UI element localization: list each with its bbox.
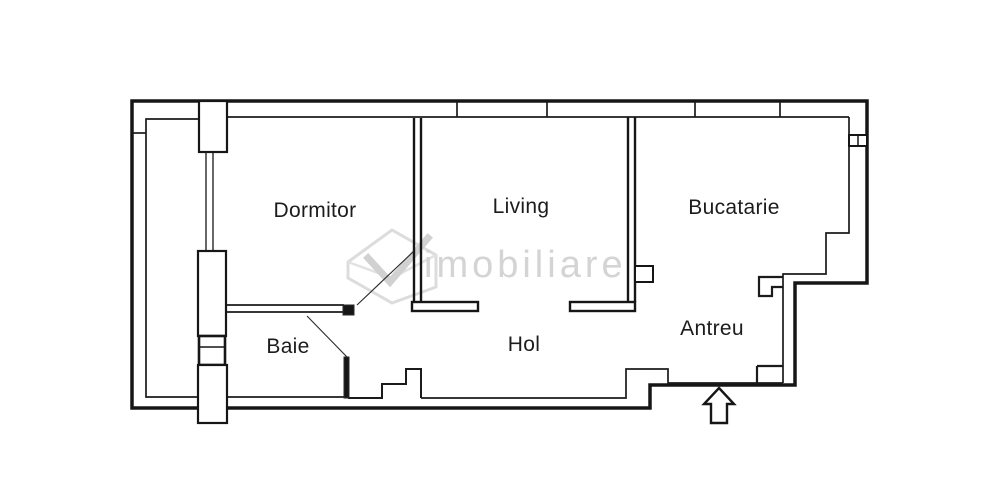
- shaft-block: [199, 336, 225, 365]
- baie-door-swing: [307, 316, 347, 357]
- vent-window: [849, 135, 867, 146]
- baie-door-jamb: [344, 357, 349, 398]
- room-label-baie: Baie: [266, 335, 309, 359]
- watermark-text: imobiliare: [424, 244, 627, 286]
- pillars: [198, 101, 227, 423]
- pillar-top: [199, 101, 227, 152]
- pillar-bottom: [198, 365, 227, 423]
- room-label-dormitor: Dormitor: [274, 199, 357, 223]
- room-label-antreu: Antreu: [680, 317, 744, 341]
- room-label-hol: Hol: [508, 333, 540, 357]
- door-hinge-block: [343, 305, 354, 315]
- floorplan-page: imobiliare: [0, 0, 999, 491]
- entrance-arrow-icon: [704, 388, 734, 423]
- wall-pillar: [635, 266, 653, 282]
- room-label-living: Living: [493, 195, 550, 219]
- floorplan-drawing: imobiliare: [0, 0, 999, 491]
- pillar-middle: [198, 251, 226, 336]
- room-label-bucatarie: Bucatarie: [688, 196, 779, 220]
- watermark-logo-icon: imobiliare: [348, 230, 627, 303]
- left-window: [206, 152, 213, 251]
